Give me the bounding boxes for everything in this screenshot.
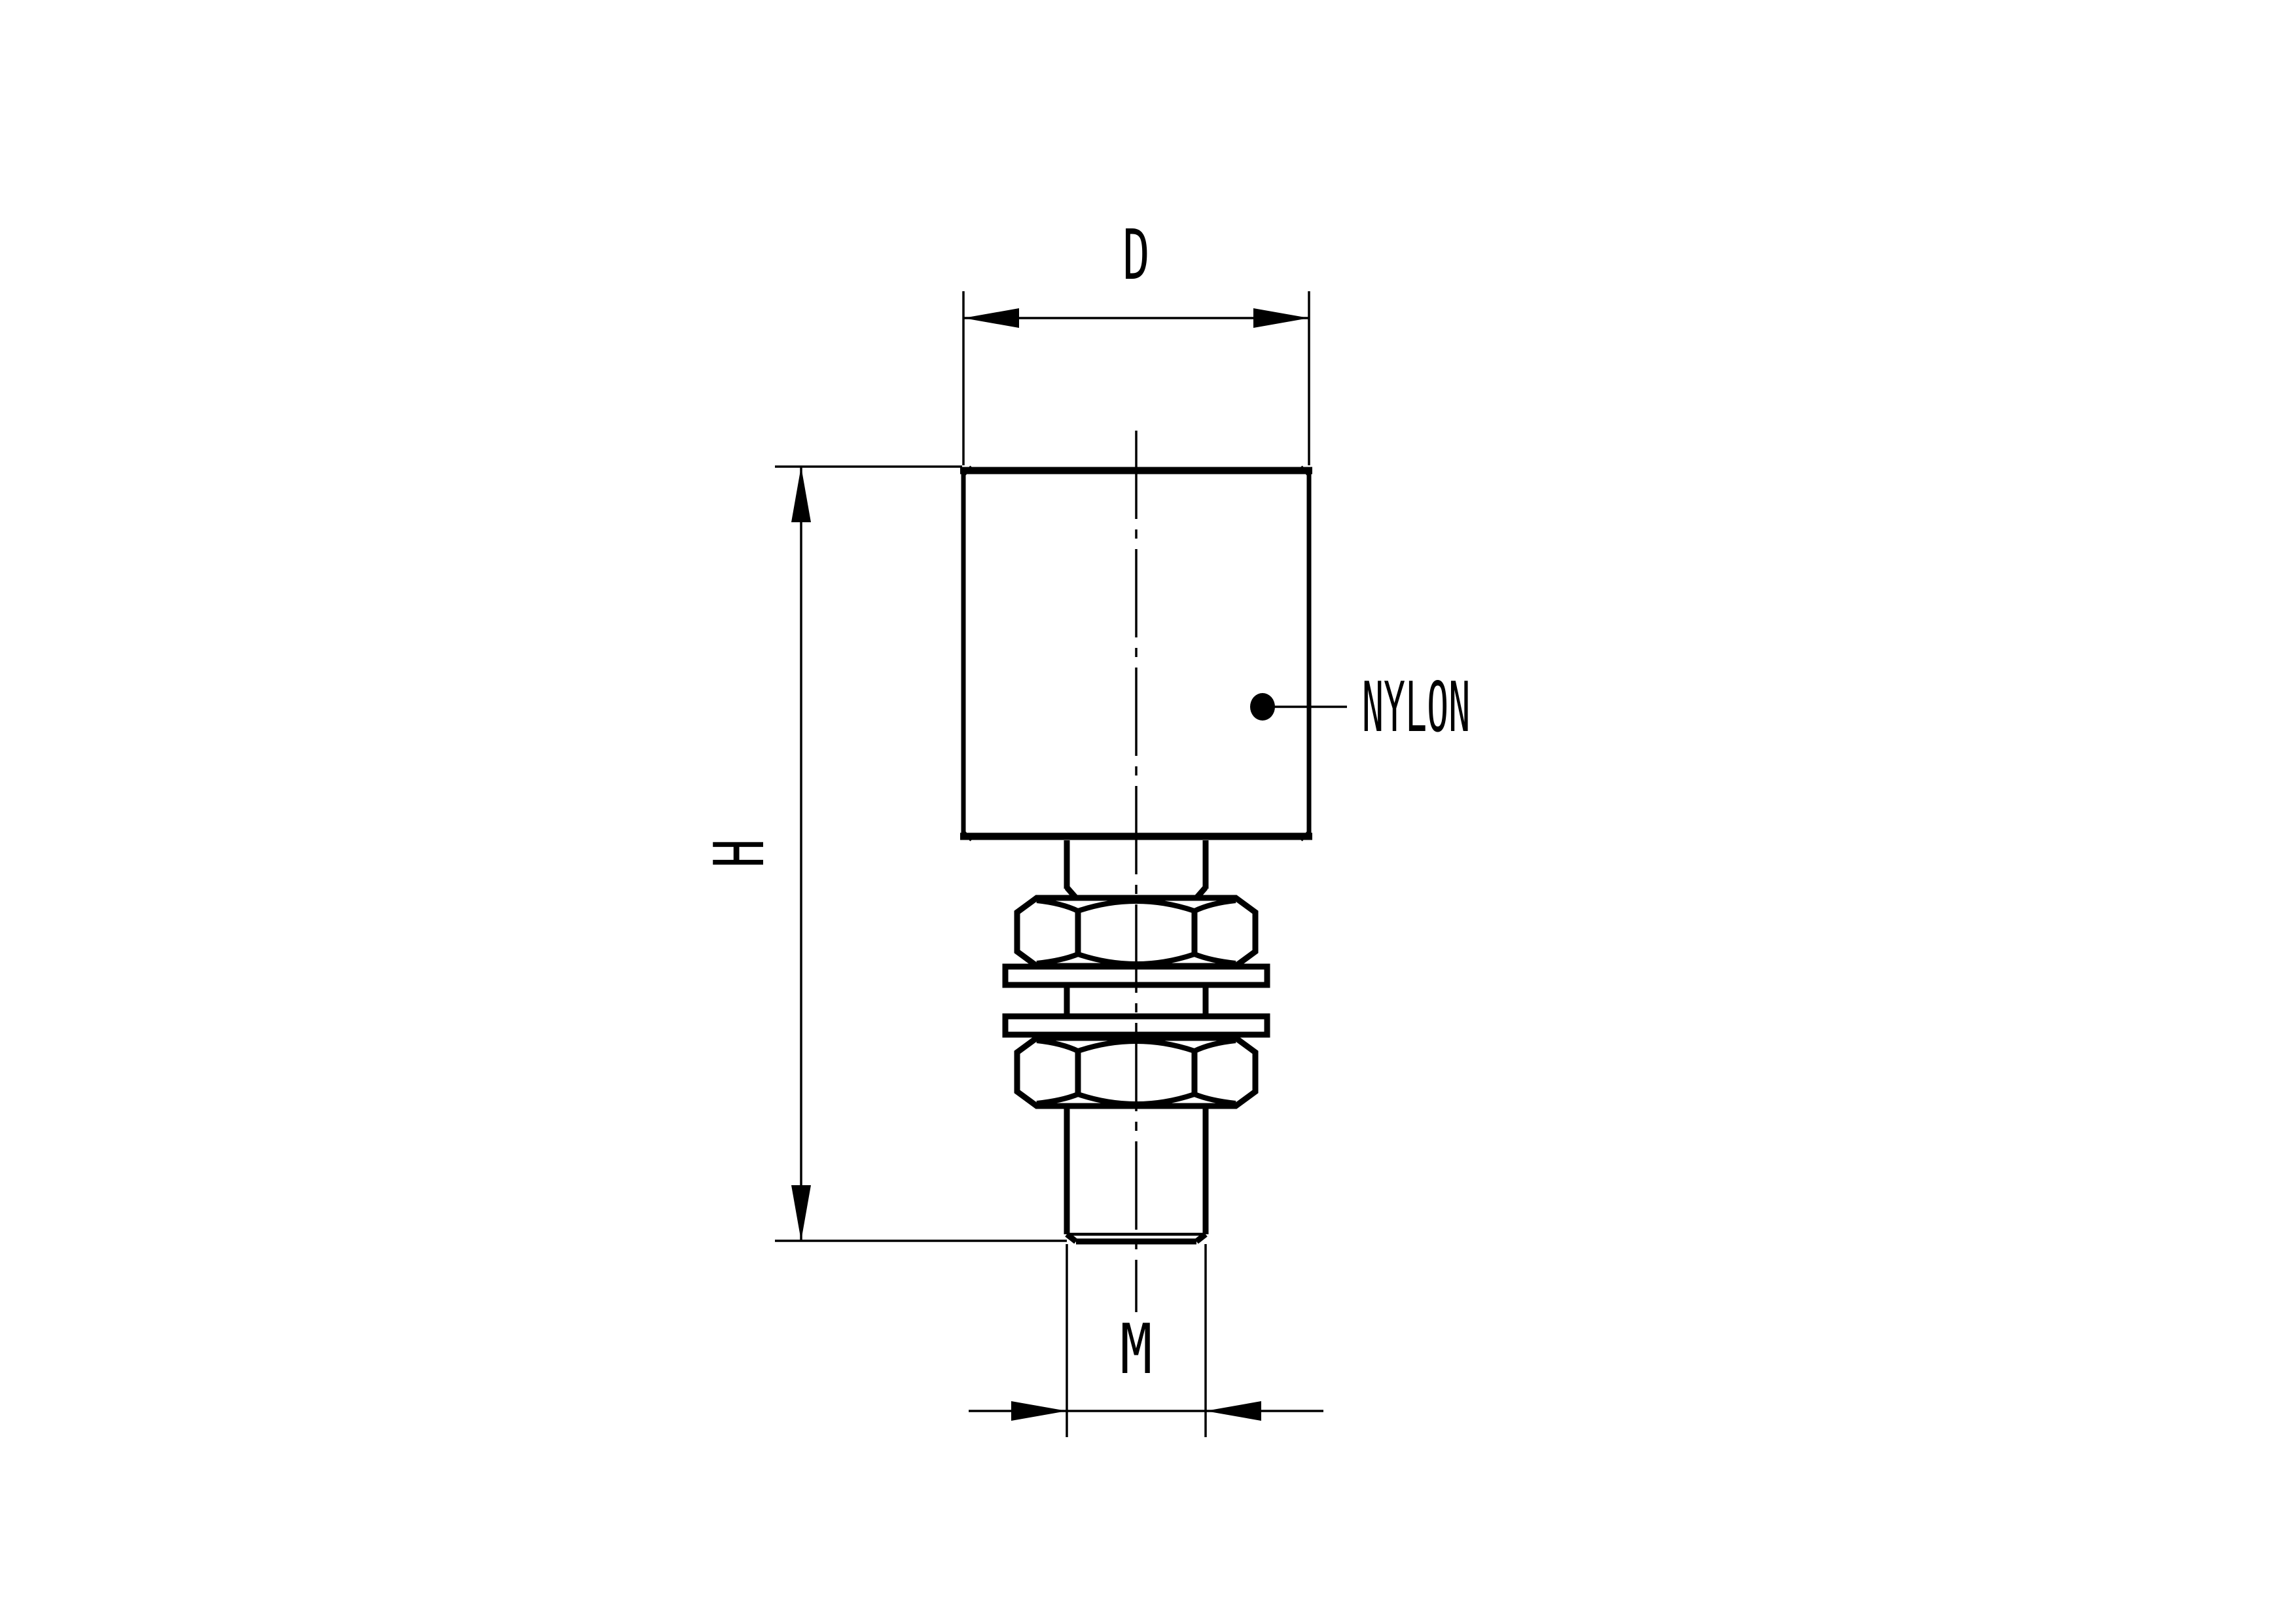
- arrowhead-left: [1011, 1401, 1067, 1421]
- dimension-label-d: D: [1122, 215, 1149, 295]
- arrowhead-right: [1206, 1401, 1261, 1421]
- dimension-label-h: H: [700, 839, 780, 868]
- technical-drawing: D H M NYLON: [0, 0, 2296, 1623]
- arrowhead-left: [963, 308, 1019, 328]
- arrowhead-top: [791, 467, 811, 522]
- arrowhead-right: [1253, 308, 1309, 328]
- dimension-m: M: [969, 1244, 1323, 1437]
- leader-dot: [1250, 693, 1275, 721]
- dimension-d: D: [963, 215, 1309, 465]
- material-label: NYLON: [1362, 667, 1470, 747]
- drawing-canvas: D H M NYLON: [0, 0, 2296, 1623]
- dimension-label-m: M: [1121, 1310, 1153, 1390]
- arrowhead-bottom: [791, 1185, 811, 1241]
